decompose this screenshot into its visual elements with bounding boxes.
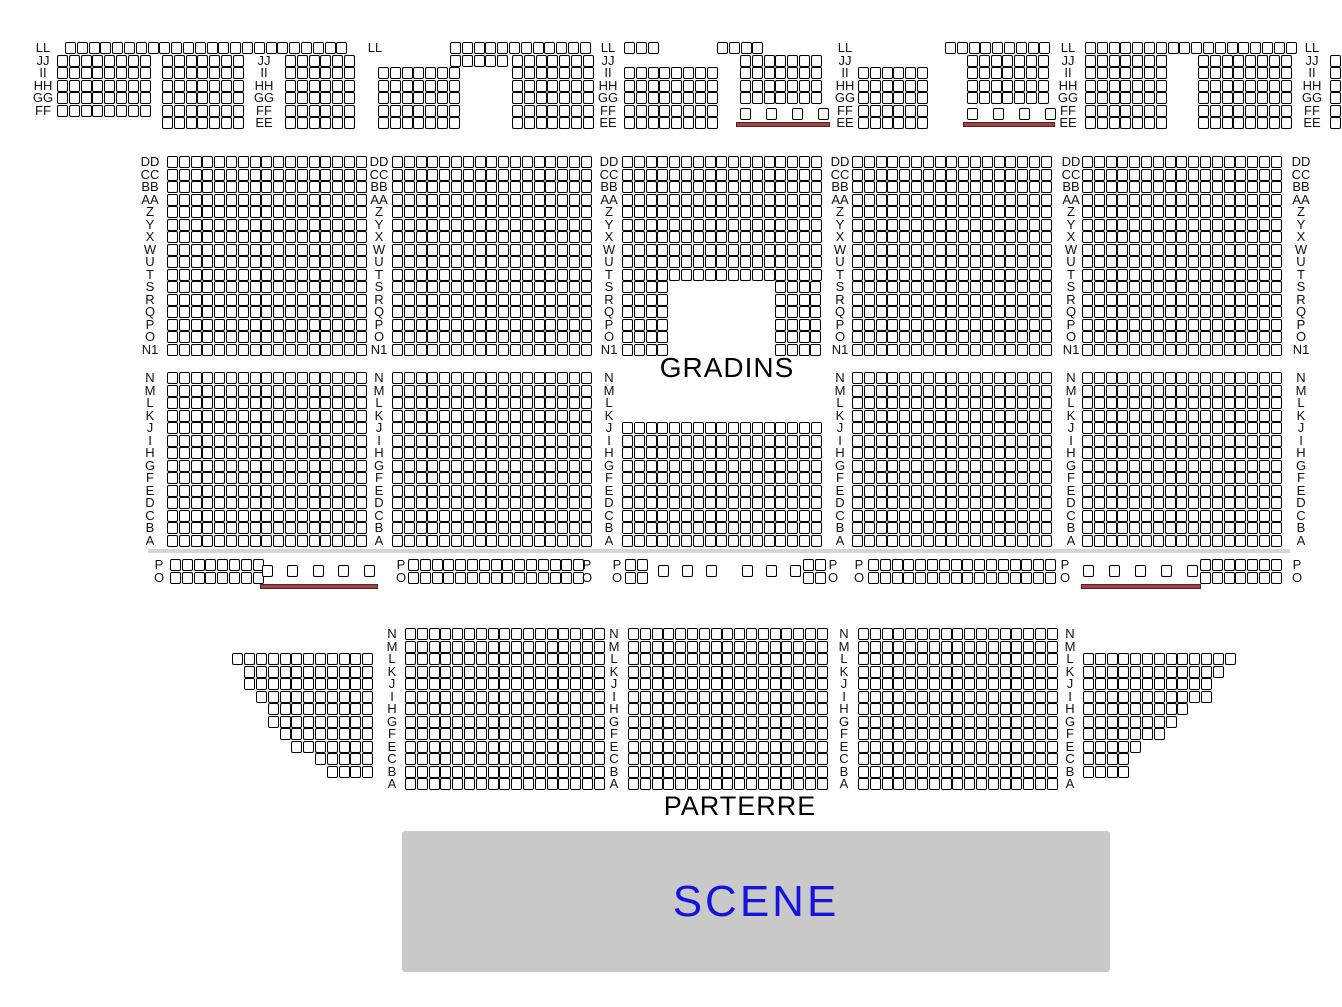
seat[interactable]: [864, 522, 875, 534]
seat[interactable]: [705, 231, 716, 243]
seat[interactable]: [523, 728, 534, 740]
seat[interactable]: [183, 42, 194, 54]
seat[interactable]: [1247, 510, 1258, 522]
seat[interactable]: [238, 397, 249, 409]
seat[interactable]: [624, 67, 635, 79]
seat[interactable]: [320, 435, 331, 447]
seat[interactable]: [1117, 472, 1128, 484]
seat[interactable]: [535, 728, 546, 740]
seat[interactable]: [350, 753, 361, 765]
seat[interactable]: [112, 42, 123, 54]
seat[interactable]: [775, 92, 786, 104]
seat[interactable]: [186, 80, 197, 92]
seat[interactable]: [427, 522, 438, 534]
seat[interactable]: [976, 628, 987, 640]
seat[interactable]: [285, 522, 296, 534]
seat[interactable]: [693, 472, 704, 484]
seat[interactable]: [793, 653, 804, 665]
seat[interactable]: [571, 105, 582, 117]
seat[interactable]: [1153, 447, 1164, 459]
seat[interactable]: [498, 231, 509, 243]
seat[interactable]: [705, 256, 716, 268]
seat[interactable]: [209, 117, 220, 129]
seat[interactable]: [1085, 80, 1096, 92]
seat[interactable]: [728, 206, 739, 218]
seat[interactable]: [451, 485, 462, 497]
seat[interactable]: [952, 753, 963, 765]
seat[interactable]: [1023, 691, 1034, 703]
seat[interactable]: [1017, 219, 1028, 231]
seat[interactable]: [1041, 422, 1052, 434]
seat[interactable]: [285, 156, 296, 168]
seat[interactable]: [233, 67, 244, 79]
seat[interactable]: [344, 169, 355, 181]
seat[interactable]: [923, 372, 934, 384]
seat[interactable]: [657, 535, 668, 547]
seat[interactable]: [581, 435, 592, 447]
seat[interactable]: [402, 80, 413, 92]
seat[interactable]: [1017, 281, 1028, 293]
seat[interactable]: [1235, 269, 1246, 281]
seat[interactable]: [803, 559, 814, 571]
seat[interactable]: [1212, 231, 1223, 243]
seat[interactable]: [214, 497, 225, 509]
seat[interactable]: [1176, 472, 1187, 484]
seat[interactable]: [550, 559, 561, 571]
seat[interactable]: [463, 331, 474, 343]
seat[interactable]: [970, 344, 981, 356]
seat[interactable]: [416, 256, 427, 268]
seat[interactable]: [233, 80, 244, 92]
seat[interactable]: [320, 535, 331, 547]
seat[interactable]: [669, 244, 680, 256]
seat[interactable]: [764, 231, 775, 243]
seat[interactable]: [534, 522, 545, 534]
seat[interactable]: [793, 778, 804, 790]
seat[interactable]: [770, 653, 781, 665]
seat[interactable]: [1212, 485, 1223, 497]
seat[interactable]: [729, 42, 740, 54]
seat[interactable]: [659, 80, 670, 92]
seat[interactable]: [1224, 522, 1235, 534]
seat[interactable]: [238, 294, 249, 306]
seat[interactable]: [764, 510, 775, 522]
seat[interactable]: [946, 306, 957, 318]
seat[interactable]: [622, 485, 633, 497]
seat[interactable]: [1094, 194, 1105, 206]
seat[interactable]: [1259, 497, 1270, 509]
seat[interactable]: [988, 766, 999, 778]
seat[interactable]: [1130, 666, 1141, 678]
seat[interactable]: [464, 753, 475, 765]
seat[interactable]: [534, 219, 545, 231]
seat[interactable]: [1259, 319, 1270, 331]
seat[interactable]: [994, 422, 1005, 434]
seat[interactable]: [946, 269, 957, 281]
seat[interactable]: [1094, 206, 1105, 218]
seat[interactable]: [1200, 206, 1211, 218]
seat[interactable]: [427, 319, 438, 331]
seat[interactable]: [297, 194, 308, 206]
seat[interactable]: [764, 460, 775, 472]
seat[interactable]: [887, 331, 898, 343]
seat[interactable]: [557, 269, 568, 281]
seat[interactable]: [728, 485, 739, 497]
seat[interactable]: [1141, 231, 1152, 243]
seat[interactable]: [570, 641, 581, 653]
seat[interactable]: [332, 55, 343, 67]
seat[interactable]: [1041, 294, 1052, 306]
seat[interactable]: [320, 510, 331, 522]
seat[interactable]: [622, 244, 633, 256]
seat[interactable]: [628, 666, 639, 678]
seat[interactable]: [799, 206, 810, 218]
seat[interactable]: [475, 522, 486, 534]
seat[interactable]: [233, 105, 244, 117]
seat[interactable]: [787, 331, 798, 343]
seat[interactable]: [1235, 397, 1246, 409]
seat[interactable]: [652, 641, 663, 653]
seat[interactable]: [273, 522, 284, 534]
seat[interactable]: [280, 716, 291, 728]
seat[interactable]: [740, 435, 751, 447]
seat[interactable]: [439, 510, 450, 522]
seat[interactable]: [104, 80, 115, 92]
seat[interactable]: [510, 522, 521, 534]
seat[interactable]: [486, 244, 497, 256]
seat[interactable]: [764, 67, 775, 79]
seat[interactable]: [498, 156, 509, 168]
seat[interactable]: [1011, 628, 1022, 640]
seat[interactable]: [545, 306, 556, 318]
seat[interactable]: [1083, 753, 1094, 765]
seat[interactable]: [1118, 716, 1129, 728]
seat[interactable]: [970, 169, 981, 181]
seat[interactable]: [1141, 294, 1152, 306]
seat[interactable]: [1247, 256, 1258, 268]
seat[interactable]: [167, 397, 178, 409]
seat[interactable]: [1176, 460, 1187, 472]
seat[interactable]: [392, 331, 403, 343]
seat[interactable]: [557, 194, 568, 206]
seat[interactable]: [547, 117, 558, 129]
seat[interactable]: [392, 256, 403, 268]
seat[interactable]: [392, 497, 403, 509]
seat[interactable]: [439, 306, 450, 318]
seat[interactable]: [268, 716, 279, 728]
seat[interactable]: [882, 67, 893, 79]
seat[interactable]: [545, 422, 556, 434]
seat[interactable]: [514, 572, 525, 584]
seat[interactable]: [663, 741, 674, 753]
seat[interactable]: [1224, 435, 1235, 447]
seat[interactable]: [534, 344, 545, 356]
seat[interactable]: [250, 194, 261, 206]
seat[interactable]: [882, 703, 893, 715]
seat[interactable]: [167, 497, 178, 509]
seat[interactable]: [870, 653, 881, 665]
seat[interactable]: [476, 666, 487, 678]
seat[interactable]: [675, 678, 686, 690]
seat[interactable]: [309, 156, 320, 168]
seat[interactable]: [427, 306, 438, 318]
seat[interactable]: [935, 294, 946, 306]
seat[interactable]: [297, 385, 308, 397]
seat[interactable]: [297, 497, 308, 509]
seat[interactable]: [285, 169, 296, 181]
seat[interactable]: [663, 766, 674, 778]
seat[interactable]: [179, 435, 190, 447]
seat[interactable]: [923, 231, 934, 243]
seat[interactable]: [256, 678, 267, 690]
seat[interactable]: [1029, 194, 1040, 206]
seat[interactable]: [1271, 497, 1282, 509]
seat[interactable]: [463, 447, 474, 459]
seat[interactable]: [499, 753, 510, 765]
seat[interactable]: [510, 497, 521, 509]
seat[interactable]: [416, 244, 427, 256]
seat[interactable]: [1129, 447, 1140, 459]
seat[interactable]: [167, 294, 178, 306]
seat[interactable]: [297, 117, 308, 129]
seat[interactable]: [511, 778, 522, 790]
seat[interactable]: [1233, 55, 1244, 67]
seat[interactable]: [191, 181, 202, 193]
seat[interactable]: [1235, 472, 1246, 484]
seat[interactable]: [787, 281, 798, 293]
seat[interactable]: [439, 372, 450, 384]
seat[interactable]: [273, 231, 284, 243]
seat[interactable]: [427, 472, 438, 484]
seat[interactable]: [191, 497, 202, 509]
seat[interactable]: [770, 741, 781, 753]
seat[interactable]: [1153, 397, 1164, 409]
seat[interactable]: [628, 716, 639, 728]
seat[interactable]: [344, 485, 355, 497]
seat[interactable]: [451, 156, 462, 168]
seat[interactable]: [81, 67, 92, 79]
seat[interactable]: [967, 92, 978, 104]
seat[interactable]: [734, 628, 745, 640]
seat[interactable]: [705, 169, 716, 181]
seat[interactable]: [1029, 422, 1040, 434]
seat[interactable]: [1117, 306, 1128, 318]
seat[interactable]: [687, 641, 698, 653]
seat[interactable]: [929, 641, 940, 653]
seat[interactable]: [1106, 410, 1117, 422]
seat[interactable]: [1200, 256, 1211, 268]
seat[interactable]: [544, 42, 555, 54]
seat[interactable]: [512, 117, 523, 129]
seat[interactable]: [1245, 67, 1256, 79]
seat[interactable]: [770, 628, 781, 640]
seat[interactable]: [261, 206, 272, 218]
seat[interactable]: [775, 497, 786, 509]
seat[interactable]: [1016, 42, 1027, 54]
seat[interactable]: [404, 169, 415, 181]
seat[interactable]: [191, 485, 202, 497]
seat[interactable]: [214, 522, 225, 534]
seat[interactable]: [1014, 92, 1025, 104]
seat[interactable]: [1215, 42, 1226, 54]
seat[interactable]: [463, 535, 474, 547]
seat[interactable]: [104, 105, 115, 117]
seat[interactable]: [404, 472, 415, 484]
seat[interactable]: [202, 472, 213, 484]
seat[interactable]: [451, 294, 462, 306]
seat[interactable]: [261, 410, 272, 422]
seat[interactable]: [740, 181, 751, 193]
seat[interactable]: [876, 410, 887, 422]
seat[interactable]: [1129, 319, 1140, 331]
seat[interactable]: [1026, 80, 1037, 92]
seat[interactable]: [194, 572, 205, 584]
seat[interactable]: [261, 194, 272, 206]
seat[interactable]: [1005, 169, 1016, 181]
seat[interactable]: [392, 294, 403, 306]
seat[interactable]: [1235, 447, 1246, 459]
seat[interactable]: [416, 535, 427, 547]
seat[interactable]: [946, 397, 957, 409]
seat[interactable]: [309, 385, 320, 397]
seat[interactable]: [752, 472, 763, 484]
seat[interactable]: [622, 535, 633, 547]
seat[interactable]: [498, 256, 509, 268]
seat[interactable]: [535, 753, 546, 765]
seat[interactable]: [1000, 728, 1011, 740]
seat[interactable]: [1141, 219, 1152, 231]
seat[interactable]: [404, 306, 415, 318]
seat[interactable]: [350, 653, 361, 665]
seat[interactable]: [1039, 42, 1050, 54]
seat[interactable]: [705, 422, 716, 434]
seat[interactable]: [946, 256, 957, 268]
seat[interactable]: [464, 703, 475, 715]
seat[interactable]: [320, 219, 331, 231]
seat[interactable]: [545, 535, 556, 547]
seat[interactable]: [1021, 572, 1032, 584]
seat[interactable]: [864, 219, 875, 231]
seat[interactable]: [663, 691, 674, 703]
seat[interactable]: [451, 269, 462, 281]
seat[interactable]: [1109, 92, 1120, 104]
seat[interactable]: [209, 55, 220, 67]
seat[interactable]: [261, 497, 272, 509]
seat[interactable]: [787, 472, 798, 484]
seat[interactable]: [864, 256, 875, 268]
seat[interactable]: [764, 206, 775, 218]
seat[interactable]: [1132, 55, 1143, 67]
seat[interactable]: [309, 422, 320, 434]
seat[interactable]: [440, 666, 451, 678]
seat[interactable]: [511, 641, 522, 653]
seat[interactable]: [432, 572, 443, 584]
seat[interactable]: [1176, 269, 1187, 281]
seat[interactable]: [1222, 67, 1233, 79]
seat[interactable]: [775, 447, 786, 459]
seat[interactable]: [344, 385, 355, 397]
seat[interactable]: [191, 269, 202, 281]
seat[interactable]: [882, 105, 893, 117]
seat[interactable]: [1002, 67, 1013, 79]
seat[interactable]: [475, 535, 486, 547]
seat[interactable]: [191, 410, 202, 422]
seat[interactable]: [557, 331, 568, 343]
seat[interactable]: [1011, 728, 1022, 740]
seat[interactable]: [350, 703, 361, 715]
seat[interactable]: [752, 244, 763, 256]
seat[interactable]: [1153, 281, 1164, 293]
seat[interactable]: [498, 206, 509, 218]
seat[interactable]: [524, 80, 535, 92]
seat[interactable]: [911, 344, 922, 356]
seat[interactable]: [1200, 219, 1211, 231]
seat[interactable]: [534, 256, 545, 268]
seat[interactable]: [974, 559, 985, 571]
seat[interactable]: [285, 422, 296, 434]
seat[interactable]: [1097, 92, 1108, 104]
seat[interactable]: [320, 269, 331, 281]
seat[interactable]: [463, 385, 474, 397]
seat[interactable]: [669, 269, 680, 281]
seat[interactable]: [705, 219, 716, 231]
spaced-seat[interactable]: [262, 565, 273, 577]
seat[interactable]: [128, 55, 139, 67]
seat[interactable]: [167, 319, 178, 331]
seat[interactable]: [362, 703, 373, 715]
seat[interactable]: [622, 447, 633, 459]
seat[interactable]: [250, 306, 261, 318]
seat[interactable]: [970, 447, 981, 459]
seat[interactable]: [752, 422, 763, 434]
seat[interactable]: [675, 753, 686, 765]
seat[interactable]: [1153, 231, 1164, 243]
seat[interactable]: [429, 641, 440, 653]
seat[interactable]: [1165, 256, 1176, 268]
seat[interactable]: [486, 385, 497, 397]
seat[interactable]: [1224, 269, 1235, 281]
seat[interactable]: [1117, 269, 1128, 281]
seat[interactable]: [463, 372, 474, 384]
seat[interactable]: [1035, 728, 1046, 740]
seat[interactable]: [1210, 80, 1221, 92]
seat[interactable]: [722, 628, 733, 640]
seat[interactable]: [663, 778, 674, 790]
seat[interactable]: [699, 691, 710, 703]
seat[interactable]: [681, 447, 692, 459]
seat[interactable]: [339, 678, 350, 690]
seat[interactable]: [905, 628, 916, 640]
seat[interactable]: [1271, 319, 1282, 331]
seat[interactable]: [476, 628, 487, 640]
seat[interactable]: [1188, 472, 1199, 484]
seat[interactable]: [799, 92, 810, 104]
seat[interactable]: [315, 666, 326, 678]
seat[interactable]: [557, 231, 568, 243]
seat[interactable]: [970, 497, 981, 509]
seat[interactable]: [1235, 156, 1246, 168]
seat[interactable]: [1198, 67, 1209, 79]
seat[interactable]: [486, 460, 497, 472]
seat[interactable]: [402, 117, 413, 129]
seat[interactable]: [475, 231, 486, 243]
seat[interactable]: [455, 572, 466, 584]
seat[interactable]: [1271, 397, 1282, 409]
seat[interactable]: [427, 460, 438, 472]
seat[interactable]: [858, 678, 869, 690]
seat[interactable]: [522, 522, 533, 534]
seat[interactable]: [681, 219, 692, 231]
